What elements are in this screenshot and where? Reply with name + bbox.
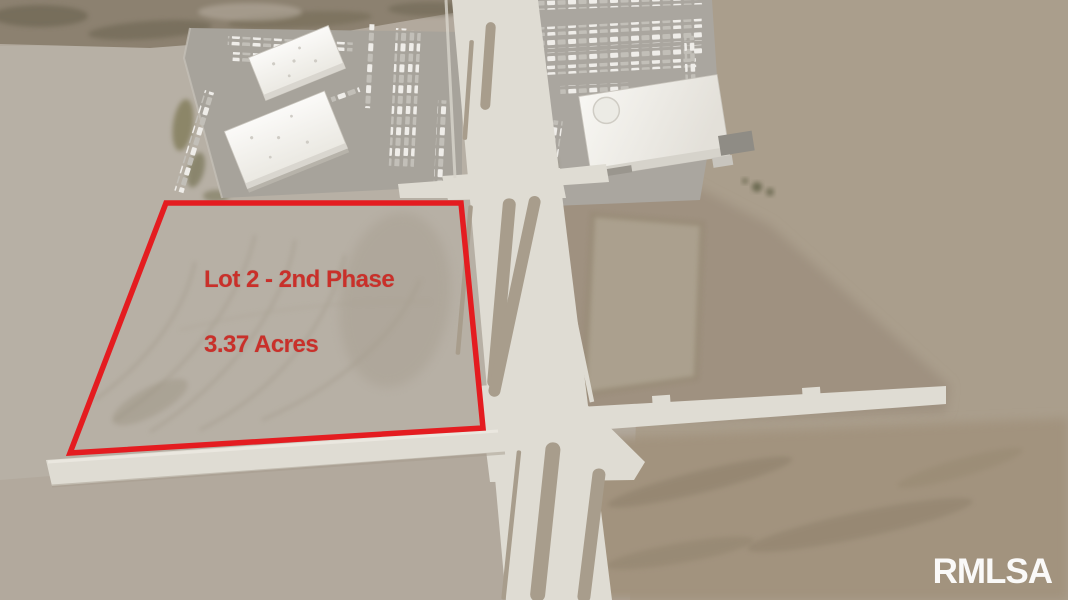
watermark: RMLSA: [933, 552, 1052, 592]
lot-label: Lot 2 - 2nd Phase: [204, 266, 394, 294]
aerial-photo: Lot 2 - 2nd Phase 3.37 Acres RMLSA: [0, 0, 1068, 600]
aerial-photo-canvas: [0, 0, 1068, 600]
warehouse-complex: [174, 24, 462, 198]
acreage-label: 3.37 Acres: [204, 331, 318, 359]
